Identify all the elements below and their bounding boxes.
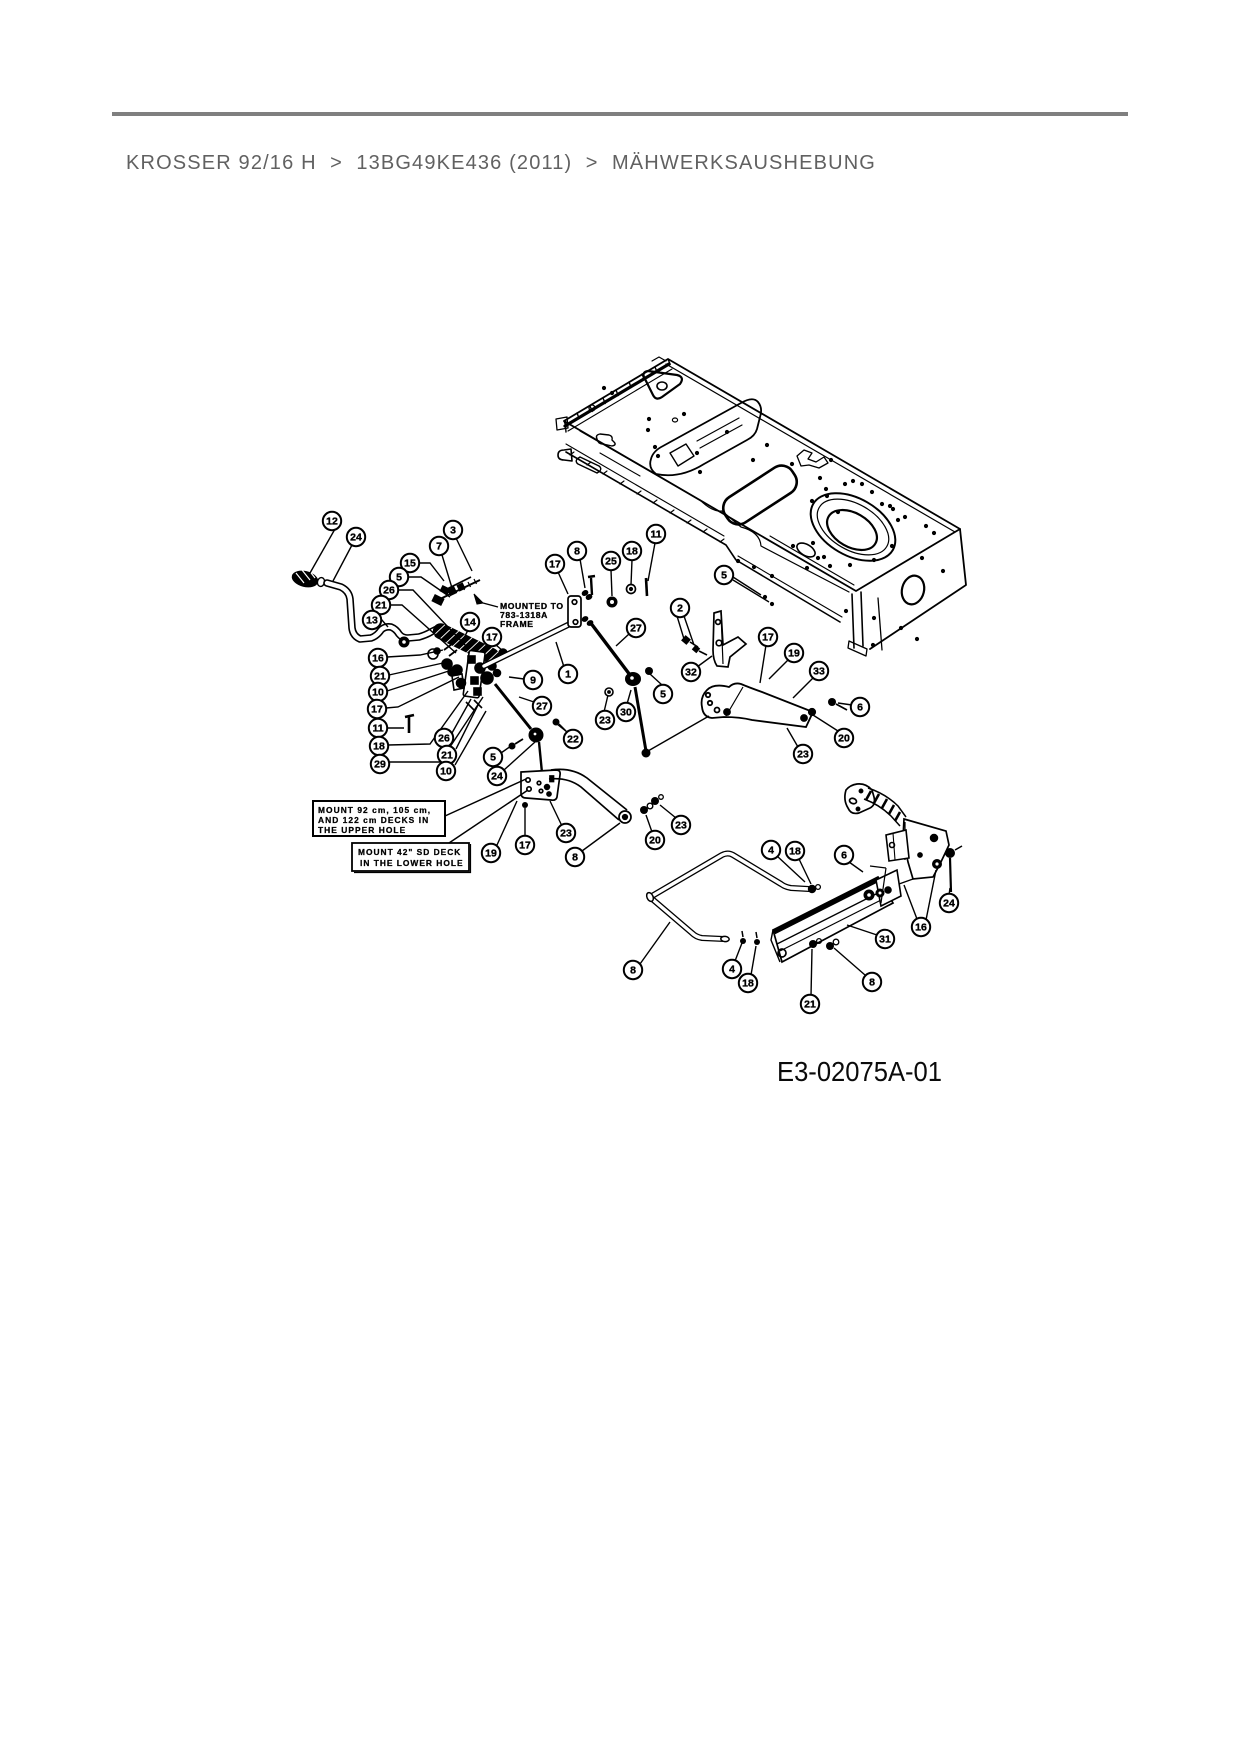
svg-text:5: 5: [721, 570, 727, 582]
svg-text:5: 5: [396, 572, 402, 584]
svg-text:17: 17: [519, 840, 531, 852]
svg-text:23: 23: [675, 820, 687, 832]
svg-text:18: 18: [789, 846, 801, 858]
svg-text:21: 21: [804, 999, 816, 1011]
svg-text:1: 1: [565, 669, 571, 681]
svg-text:13: 13: [366, 615, 378, 627]
svg-text:5: 5: [660, 689, 666, 701]
svg-text:18: 18: [373, 741, 385, 753]
svg-text:30: 30: [620, 707, 632, 719]
svg-text:29: 29: [374, 759, 386, 771]
svg-text:17: 17: [371, 704, 383, 716]
svg-text:31: 31: [879, 934, 891, 946]
svg-text:12: 12: [326, 516, 338, 528]
svg-text:27: 27: [536, 701, 548, 713]
svg-text:24: 24: [943, 898, 955, 910]
svg-text:26: 26: [438, 733, 450, 745]
svg-text:17: 17: [549, 559, 561, 571]
svg-text:17: 17: [762, 632, 774, 644]
svg-text:21: 21: [441, 750, 453, 762]
svg-text:4: 4: [768, 845, 774, 857]
svg-text:27: 27: [630, 623, 642, 635]
svg-text:3: 3: [450, 525, 456, 537]
svg-text:6: 6: [857, 702, 863, 714]
svg-text:16: 16: [915, 922, 927, 934]
svg-text:10: 10: [372, 687, 384, 699]
svg-text:20: 20: [838, 733, 850, 745]
svg-text:11: 11: [372, 723, 383, 735]
svg-text:IN THE LOWER HOLE: IN THE LOWER HOLE: [360, 858, 464, 868]
svg-text:10: 10: [440, 766, 452, 778]
svg-text:THE UPPER HOLE: THE UPPER HOLE: [318, 825, 406, 835]
svg-text:18: 18: [626, 546, 638, 558]
svg-text:17: 17: [486, 632, 498, 644]
svg-text:AND 122 cm DECKS IN: AND 122 cm DECKS IN: [318, 815, 429, 825]
svg-text:19: 19: [788, 648, 800, 660]
svg-text:21: 21: [375, 600, 387, 612]
svg-text:MOUNT 92 cm, 105 cm,: MOUNT 92 cm, 105 cm,: [318, 805, 431, 815]
svg-text:25: 25: [605, 556, 617, 568]
svg-text:5: 5: [490, 752, 496, 764]
svg-text:E3-02075A-01: E3-02075A-01: [777, 1056, 942, 1087]
svg-text:14: 14: [464, 617, 476, 629]
svg-text:8: 8: [572, 852, 578, 864]
svg-text:22: 22: [567, 734, 579, 746]
svg-text:16: 16: [372, 653, 384, 665]
svg-text:20: 20: [649, 835, 661, 847]
svg-text:9: 9: [530, 675, 536, 687]
svg-text:19: 19: [485, 848, 497, 860]
svg-text:23: 23: [797, 749, 809, 761]
svg-text:6: 6: [841, 850, 847, 862]
svg-text:24: 24: [491, 771, 503, 783]
svg-text:FRAME: FRAME: [500, 619, 534, 629]
svg-text:11: 11: [650, 529, 661, 541]
svg-text:18: 18: [742, 978, 754, 990]
svg-text:32: 32: [685, 667, 697, 679]
svg-text:2: 2: [677, 603, 683, 615]
svg-text:21: 21: [374, 671, 386, 683]
svg-text:8: 8: [630, 965, 636, 977]
svg-text:23: 23: [560, 828, 572, 840]
svg-text:8: 8: [869, 977, 875, 989]
svg-text:8: 8: [574, 546, 580, 558]
svg-text:MOUNT 42" SD DECK: MOUNT 42" SD DECK: [358, 847, 461, 857]
svg-text:7: 7: [436, 541, 442, 553]
svg-text:24: 24: [350, 532, 362, 544]
svg-text:33: 33: [813, 666, 825, 678]
svg-text:15: 15: [404, 558, 416, 570]
svg-text:23: 23: [599, 715, 611, 727]
svg-text:26: 26: [383, 585, 395, 597]
svg-text:4: 4: [729, 964, 735, 976]
